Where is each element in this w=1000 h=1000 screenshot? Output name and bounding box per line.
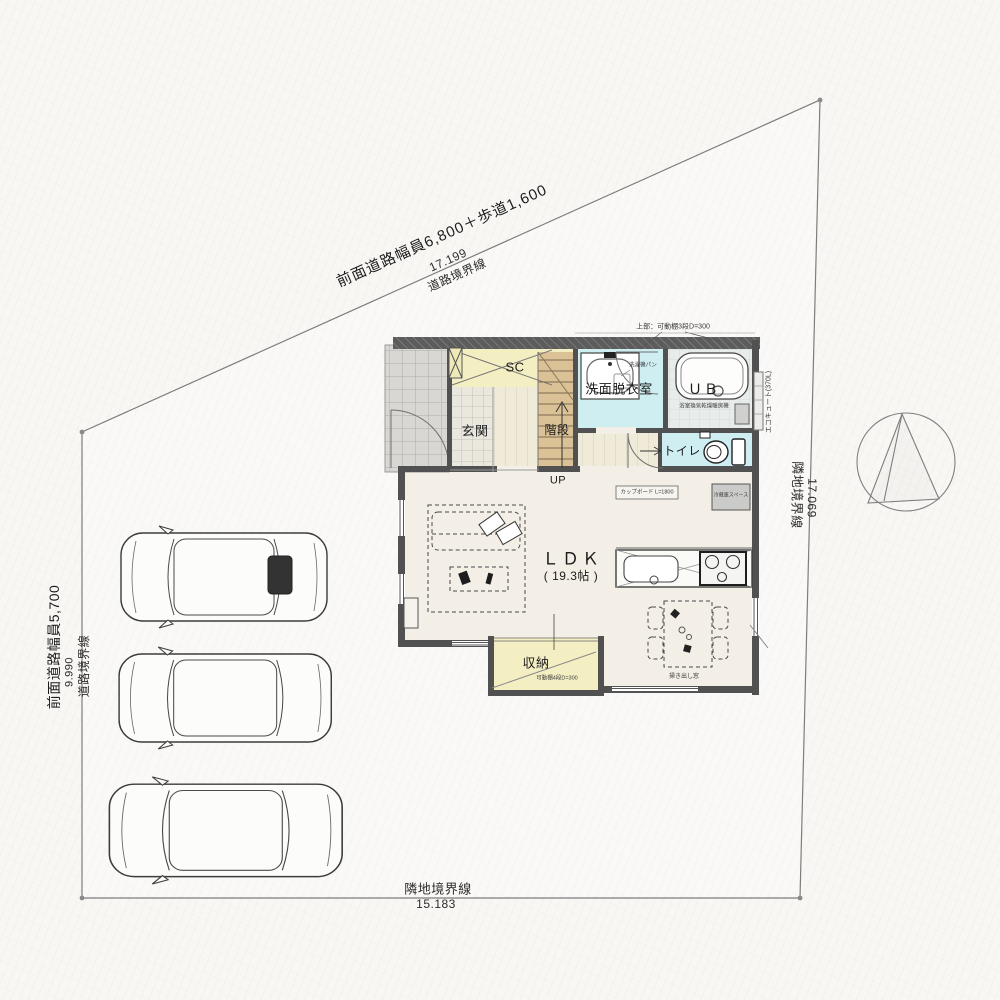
road-left-boundary-type: 道路境界線 — [78, 635, 90, 698]
annotation-fridge: 冷蔵庫スペース — [714, 494, 748, 499]
car-3 — [109, 777, 342, 884]
plan-graphics — [0, 0, 1000, 1000]
road-left-length: 9.990 — [65, 657, 76, 687]
water-heater-unit — [754, 372, 763, 430]
annotation-upper-shelf: 上部：可動棚3段D=300 — [636, 324, 710, 331]
room-label-washroom: 洗面脱衣室 — [585, 383, 653, 396]
tv-board — [404, 598, 418, 628]
bottom-boundary-length: 15.183 — [416, 898, 456, 910]
road-left-label: 前面道路幅員5,700 — [47, 585, 61, 710]
car-1 — [121, 526, 327, 628]
room-label-storage: 収納 — [522, 657, 549, 670]
site-plan-drawing: 前面道路幅員6,800＋歩道1,600 17.199 道路境界線 前面道路幅員5… — [0, 0, 1000, 1000]
room-label-ldk-area: ( 19.3帖 ) — [544, 570, 599, 582]
room-label-ldk: ＬＤＫ — [542, 551, 602, 568]
stairs-up-label: UP — [550, 476, 566, 487]
annotation-washer-pan: 洗濯機パン — [629, 363, 657, 369]
car-2 — [119, 647, 331, 749]
right-boundary-length: 17.069 — [806, 478, 819, 518]
annotation-storage-shelf: 可動棚4段D=300 — [536, 676, 577, 682]
annotation-water-heater: エコキュート(370L) — [766, 371, 773, 433]
right-boundary-type: 隣地境界線 — [790, 461, 804, 529]
north-arrow-icon — [857, 413, 955, 511]
room-label-bath: ＵＢ — [688, 382, 720, 396]
annotation-cupboard: カップボード L=1800 — [620, 490, 673, 496]
annotation-bath-heater: 浴室換気乾燥暖房機 — [679, 404, 729, 410]
room-label-sc: SC — [505, 361, 524, 374]
kitchen-counter — [616, 548, 752, 587]
room-label-genkan: 玄関 — [461, 425, 488, 438]
annotation-floor-window: 掃き出し窓 — [669, 674, 699, 680]
bottom-boundary-type: 隣地境界線 — [404, 883, 472, 896]
room-label-toilet: トイレ — [663, 445, 701, 457]
room-label-stairs: 階段 — [544, 424, 569, 436]
